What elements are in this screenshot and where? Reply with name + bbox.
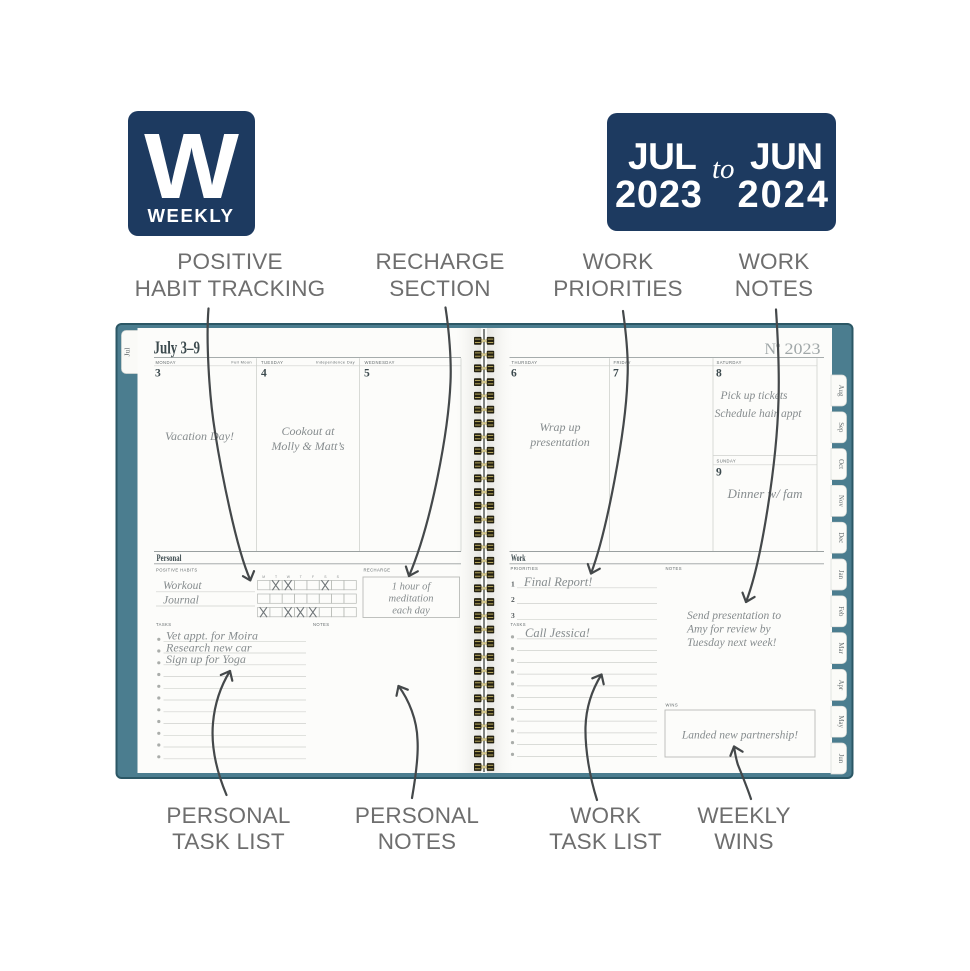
svg-text:Sign up for Yoga: Sign up for Yoga — [166, 652, 246, 666]
svg-text:Full Moon: Full Moon — [231, 360, 252, 365]
svg-text:2023: 2023 — [785, 341, 821, 358]
svg-text:8: 8 — [716, 368, 722, 380]
svg-text:TASKS: TASKS — [511, 622, 526, 627]
svg-text:Aug: Aug — [837, 385, 844, 397]
svg-text:WEDNESDAY: WEDNESDAY — [365, 360, 395, 365]
svg-text:6: 6 — [511, 368, 517, 380]
svg-text:TUESDAY: TUESDAY — [261, 360, 283, 365]
svg-text:1: 1 — [511, 579, 515, 588]
svg-text:presentation: presentation — [529, 435, 590, 449]
svg-text:Amy for review by: Amy for review by — [686, 624, 771, 636]
svg-text:Tuesday next week!: Tuesday next week! — [687, 637, 777, 649]
svg-text:Sep: Sep — [837, 422, 844, 433]
svg-text:Jan: Jan — [837, 570, 844, 580]
svg-text:Mar: Mar — [837, 642, 844, 654]
svg-text:NOTES: NOTES — [313, 622, 329, 627]
svg-text:SUNDAY: SUNDAY — [717, 458, 737, 463]
svg-text:July 3–9: July 3–9 — [154, 338, 201, 358]
svg-text:PRIORITIES: PRIORITIES — [511, 566, 539, 571]
svg-text:Personal: Personal — [157, 553, 182, 563]
svg-text:Oct: Oct — [837, 459, 844, 469]
svg-text:Jun: Jun — [837, 754, 844, 764]
svg-text:Molly & Matt’s: Molly & Matt’s — [270, 439, 344, 453]
svg-text:Cookout at: Cookout at — [282, 424, 336, 438]
svg-text:T: T — [275, 575, 277, 579]
svg-text:4: 4 — [261, 368, 267, 380]
svg-text:3: 3 — [155, 368, 161, 380]
svg-text:Work: Work — [511, 553, 526, 563]
svg-text:Send presentation to: Send presentation to — [687, 610, 781, 622]
svg-text:each day: each day — [392, 606, 430, 617]
svg-text:M: M — [262, 575, 265, 579]
svg-text:7: 7 — [613, 368, 619, 380]
svg-text:3: 3 — [511, 611, 515, 620]
svg-text:Feb: Feb — [837, 606, 844, 617]
svg-text:THURSDAY: THURSDAY — [512, 360, 538, 365]
svg-text:T: T — [300, 575, 302, 579]
svg-text:Dec: Dec — [837, 532, 844, 543]
svg-text:TASKS: TASKS — [156, 622, 171, 627]
svg-text:Landed new partnership!: Landed new partnership! — [681, 730, 798, 742]
svg-text:Dinner w/ fam: Dinner w/ fam — [726, 486, 802, 501]
svg-text:NOTES: NOTES — [666, 566, 682, 571]
svg-text:Call Jessica!: Call Jessica! — [525, 626, 590, 640]
svg-text:meditation: meditation — [389, 594, 434, 605]
svg-text:Final Report!: Final Report! — [523, 575, 592, 589]
svg-text:9: 9 — [716, 467, 722, 479]
svg-text:Schedule hair appt: Schedule hair appt — [715, 408, 803, 420]
svg-text:Vacation Day!: Vacation Day! — [165, 429, 234, 443]
svg-text:MONDAY: MONDAY — [156, 360, 176, 365]
svg-text:WINS: WINS — [666, 703, 679, 708]
svg-text:May: May — [837, 715, 844, 728]
svg-text:N: N — [765, 341, 777, 358]
svg-text:F: F — [312, 575, 314, 579]
svg-text:Nov: Nov — [837, 495, 844, 507]
svg-text:Apr: Apr — [837, 680, 844, 691]
svg-text:POSITIVE HABITS: POSITIVE HABITS — [156, 568, 198, 573]
svg-text:SATURDAY: SATURDAY — [717, 360, 742, 365]
svg-text:5: 5 — [364, 368, 370, 380]
svg-text:Wrap up: Wrap up — [539, 420, 580, 434]
svg-text:1 hour of: 1 hour of — [392, 582, 433, 593]
svg-text:Jul: Jul — [123, 348, 132, 357]
svg-text:2: 2 — [511, 595, 515, 604]
svg-text:RECHARGE: RECHARGE — [364, 568, 391, 573]
svg-text:Journal: Journal — [163, 595, 199, 607]
svg-text:Independence Day: Independence Day — [316, 360, 355, 365]
svg-text:Workout: Workout — [163, 580, 202, 592]
